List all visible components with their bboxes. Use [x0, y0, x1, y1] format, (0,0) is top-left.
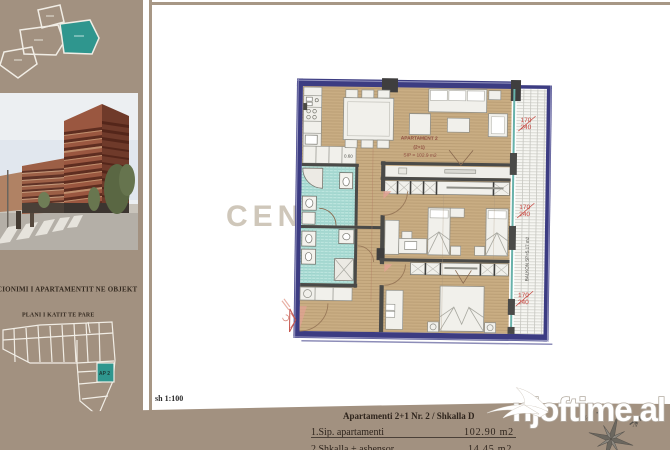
svg-text:102.90 m2: 102.90 m2 [464, 427, 514, 438]
svg-text:1.Sip. apartamenti: 1.Sip. apartamenti [311, 427, 384, 438]
svg-text:Apartamenti 2+1 Nr. 2 / Shkall: Apartamenti 2+1 Nr. 2 / Shkalla D [343, 411, 475, 421]
svg-text:sh 1:100: sh 1:100 [155, 394, 183, 403]
svg-text:(2+1): (2+1) [413, 145, 425, 151]
svg-text:BALKON SP=5.17 m2: BALKON SP=5.17 m2 [524, 236, 530, 281]
svg-text:14.45 m2: 14.45 m2 [468, 444, 512, 450]
svg-text:0.60: 0.60 [344, 154, 353, 159]
svg-text:CIONIMI I APARTAMENTIT NE OBJE: CIONIMI I APARTAMENTIT NE OBJEKT [0, 286, 137, 294]
svg-text:APARTAMENT 2: APARTAMENT 2 [401, 135, 438, 142]
svg-text:2.Shkalla + ashensor: 2.Shkalla + ashensor [311, 444, 395, 450]
svg-text:AP 2: AP 2 [99, 371, 110, 377]
svg-text:PLANI I KATIT TE PARE: PLANI I KATIT TE PARE [22, 313, 95, 319]
svg-text:SIP = 102.9 m2: SIP = 102.9 m2 [403, 152, 437, 158]
